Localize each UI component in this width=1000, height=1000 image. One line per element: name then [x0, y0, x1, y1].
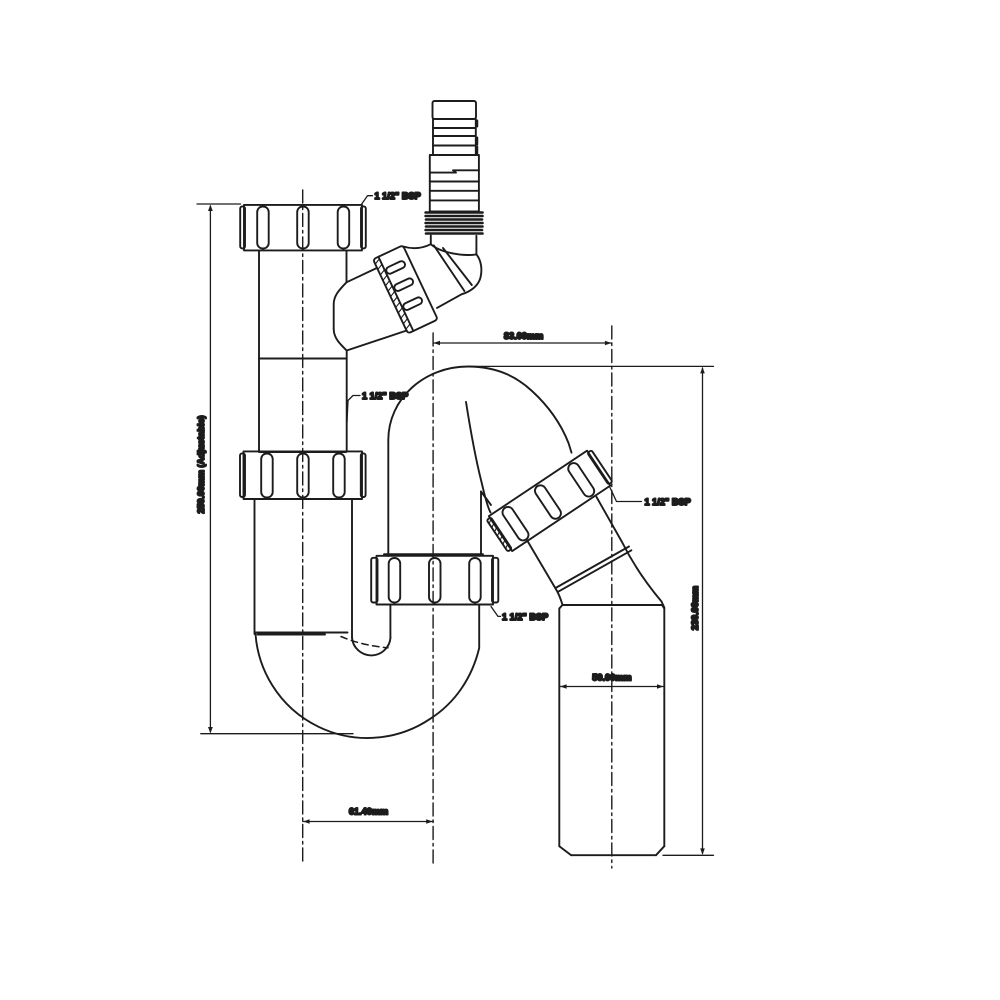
svg-text:50.00mm: 50.00mm [592, 673, 631, 683]
svg-text:250.00mm (Adjustable): 250.00mm (Adjustable) [196, 415, 206, 513]
svg-text:1 1/2" BSP: 1 1/2" BSP [375, 191, 421, 201]
svg-text:230.00mm: 230.00mm [690, 586, 700, 630]
svg-text:1 1/2" BSP: 1 1/2" BSP [362, 391, 408, 401]
svg-text:1 1/2" BSP: 1 1/2" BSP [645, 497, 691, 507]
svg-text:83.00mm: 83.00mm [504, 331, 543, 341]
svg-text:61.40mm: 61.40mm [349, 807, 388, 817]
svg-text:1 1/2" BSP: 1 1/2" BSP [502, 612, 548, 622]
